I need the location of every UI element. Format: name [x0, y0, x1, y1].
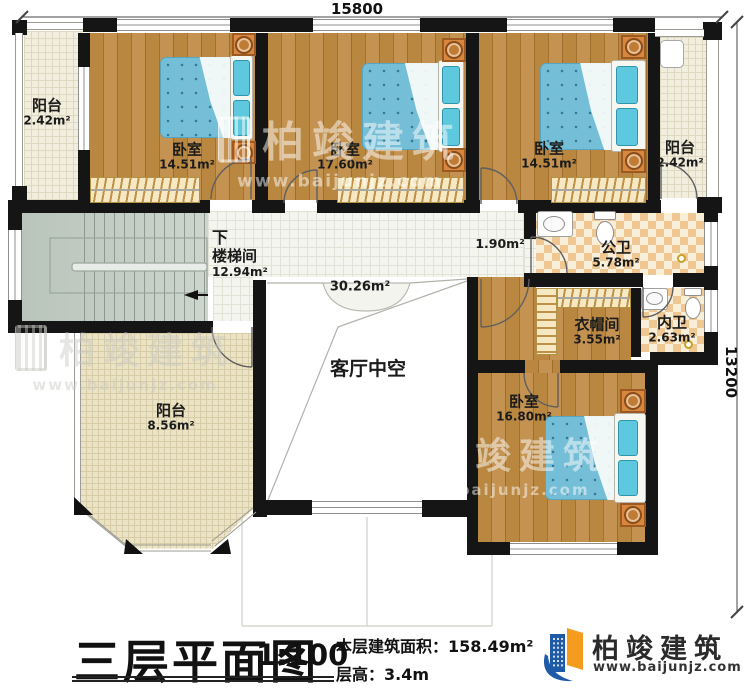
bedroom-door-threshold	[525, 360, 560, 373]
wall-segment	[252, 200, 285, 213]
nightstand	[442, 38, 466, 62]
room-label-cloakroom: 衣帽间3.55m²	[573, 316, 620, 347]
wall-segment	[8, 213, 22, 230]
nightstand	[232, 141, 256, 164]
window	[8, 230, 22, 300]
wall-segment	[466, 33, 479, 200]
room-label-balcony-top-left: 阳台2.42m²	[23, 97, 70, 128]
wall-segment	[524, 211, 536, 239]
nightstand	[621, 35, 646, 59]
floor-plan: 阳台2.42m² 卧室14.51m² 卧室17.60m² 卧室14.51m² 阳…	[0, 0, 750, 690]
room-label-living-room-void: 客厅中空	[330, 359, 406, 381]
company-website: www.baijunjz.com	[593, 660, 742, 675]
wall-segment	[613, 18, 655, 32]
room-label-hallway: 30.26m²	[330, 281, 390, 296]
pillow	[618, 460, 638, 496]
room-label-public-bathroom: 公卫5.78m²	[592, 239, 639, 270]
wall-corner	[703, 22, 722, 40]
wall-segment	[524, 273, 643, 287]
wardrobe	[90, 177, 200, 203]
room-label-balcony-bottom-left: 阳台8.56m²	[147, 402, 194, 433]
sink-basin	[646, 292, 663, 305]
lamp-icon	[235, 144, 253, 162]
dimension-height: 13200	[722, 346, 740, 398]
wall-segment	[420, 18, 507, 32]
balcony-railing	[74, 333, 81, 505]
wardrobe	[551, 177, 646, 203]
drawing-scale: 1:100	[256, 638, 348, 672]
balcony-railing	[27, 22, 83, 30]
wall-segment	[263, 500, 312, 515]
room-label-bedroom-top-left: 卧室14.51m²	[159, 141, 215, 172]
hallway-pocket-floor	[213, 277, 253, 321]
cloakroom-wardrobe	[557, 288, 631, 308]
wall-segment	[631, 288, 641, 357]
pillow	[616, 66, 638, 104]
window	[507, 19, 613, 31]
window	[510, 543, 617, 555]
lamp-icon	[624, 506, 642, 524]
balcony-railing	[706, 40, 719, 197]
wall-segment	[255, 33, 268, 200]
sliding-door	[78, 67, 90, 150]
room-label-balcony-top-right: 阳台2.42m²	[656, 139, 703, 170]
wall-segment	[83, 18, 117, 32]
lamp-icon	[445, 151, 463, 169]
nightstand	[621, 149, 646, 173]
pillow	[442, 66, 460, 104]
window	[704, 222, 718, 266]
wall-corner	[697, 197, 722, 213]
wall-segment	[617, 542, 658, 555]
lamp-icon	[624, 392, 642, 410]
pillow	[618, 420, 638, 456]
pillow	[616, 108, 638, 146]
wall-segment	[648, 33, 660, 212]
nightstand	[232, 33, 256, 56]
wall-segment	[230, 18, 313, 32]
floor-drain	[677, 254, 686, 263]
floor-height-line: 层高：3.4m	[336, 661, 429, 685]
wall-segment	[704, 212, 718, 222]
wardrobe	[337, 177, 464, 203]
wall-segment	[560, 360, 658, 373]
pillow	[442, 108, 460, 146]
washing-machine	[660, 40, 684, 68]
suite-corridor-floor	[478, 277, 536, 373]
lamp-icon	[235, 36, 253, 54]
wall-segment	[422, 500, 473, 517]
lamp-icon	[625, 38, 643, 56]
nightstand	[620, 389, 646, 413]
room-label-private-bathroom: 内卫2.63m²	[648, 314, 695, 345]
watermark-logo-icon	[387, 430, 419, 476]
balcony-railing	[655, 29, 704, 37]
lower-floor-outline	[242, 517, 492, 626]
toilet-tank	[684, 288, 702, 296]
nightstand	[620, 503, 646, 527]
floor-area-line: 本层建筑面积：158.49m²	[336, 633, 533, 657]
balcony-railing	[15, 33, 23, 186]
wall-segment	[467, 277, 478, 555]
void-outline	[267, 279, 467, 500]
dimension-width: 15800	[331, 0, 383, 18]
cloakroom-wardrobe	[536, 288, 557, 355]
balcony-bottom-left-floor	[80, 333, 253, 553]
room-label-bedroom-top-right: 卧室14.51m²	[521, 140, 577, 171]
sink-basin	[543, 216, 565, 232]
wall-segment	[8, 321, 213, 333]
room-label-vestibule: 1.90m²	[475, 237, 524, 251]
wall-segment	[704, 332, 718, 365]
room-label-stairwell: 下 楼梯间 12.94m²	[212, 228, 268, 280]
wall-segment	[478, 360, 525, 373]
room-label-bedroom-top-middle: 卧室17.60m²	[317, 141, 373, 172]
pillow	[233, 100, 250, 136]
wall-segment	[704, 266, 718, 290]
lamp-icon	[625, 152, 643, 170]
window	[704, 290, 718, 332]
nightstand	[442, 148, 466, 172]
wall-segment	[467, 542, 510, 555]
window	[312, 501, 422, 514]
wall-segment	[78, 33, 90, 67]
wall-segment	[253, 280, 266, 502]
company-logo-icon	[536, 624, 590, 684]
stair-treads	[75, 213, 208, 321]
pillow	[233, 60, 250, 96]
title-underline	[72, 676, 334, 682]
room-label-bedroom-bottom-right: 卧室16.80m²	[496, 393, 552, 424]
bath-door-threshold	[524, 239, 536, 277]
toilet-tank	[594, 211, 616, 220]
lamp-icon	[445, 41, 463, 59]
wall-segment	[645, 360, 658, 542]
wall-segment	[78, 150, 90, 200]
window	[313, 19, 420, 31]
window	[117, 19, 230, 31]
